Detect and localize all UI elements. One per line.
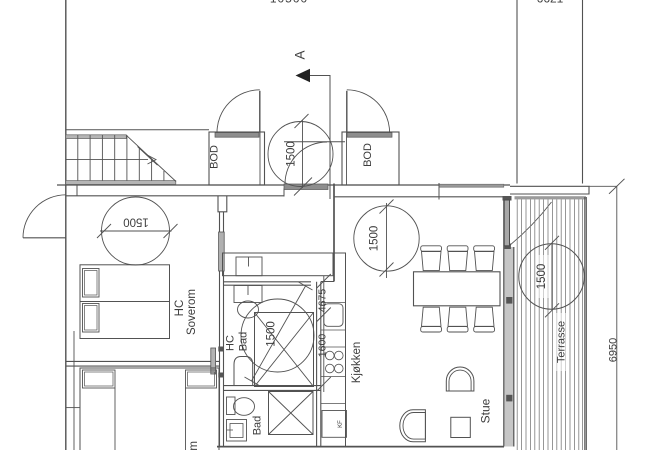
svg-text:6621: 6621 [537,0,564,5]
svg-text:1500: 1500 [266,321,278,347]
svg-text:6950: 6950 [607,338,619,362]
svg-text:Stue: Stue [479,398,493,423]
svg-text:BOD: BOD [362,143,374,167]
svg-text:Bad: Bad [237,332,249,352]
svg-text:1500: 1500 [536,264,548,290]
svg-text:4675: 4675 [316,289,328,313]
svg-text:BOD: BOD [209,145,221,169]
svg-text:HC: HC [224,335,236,351]
svg-text:Kjøkken: Kjøkken [351,342,363,384]
svg-text:1600: 1600 [316,334,328,358]
svg-text:Bad: Bad [251,416,263,436]
svg-text:KF: KF [338,420,344,428]
svg-text:1500: 1500 [286,141,298,167]
svg-text:1500: 1500 [123,216,149,228]
svg-text:Soverom: Soverom [188,441,200,450]
svg-text:10500: 10500 [270,0,308,5]
svg-text:A: A [293,50,308,59]
svg-text:HC: HC [174,300,186,317]
svg-text:1500: 1500 [369,226,381,252]
svg-text:Terrasse: Terrasse [555,321,567,363]
svg-text:Soverom: Soverom [186,289,198,335]
